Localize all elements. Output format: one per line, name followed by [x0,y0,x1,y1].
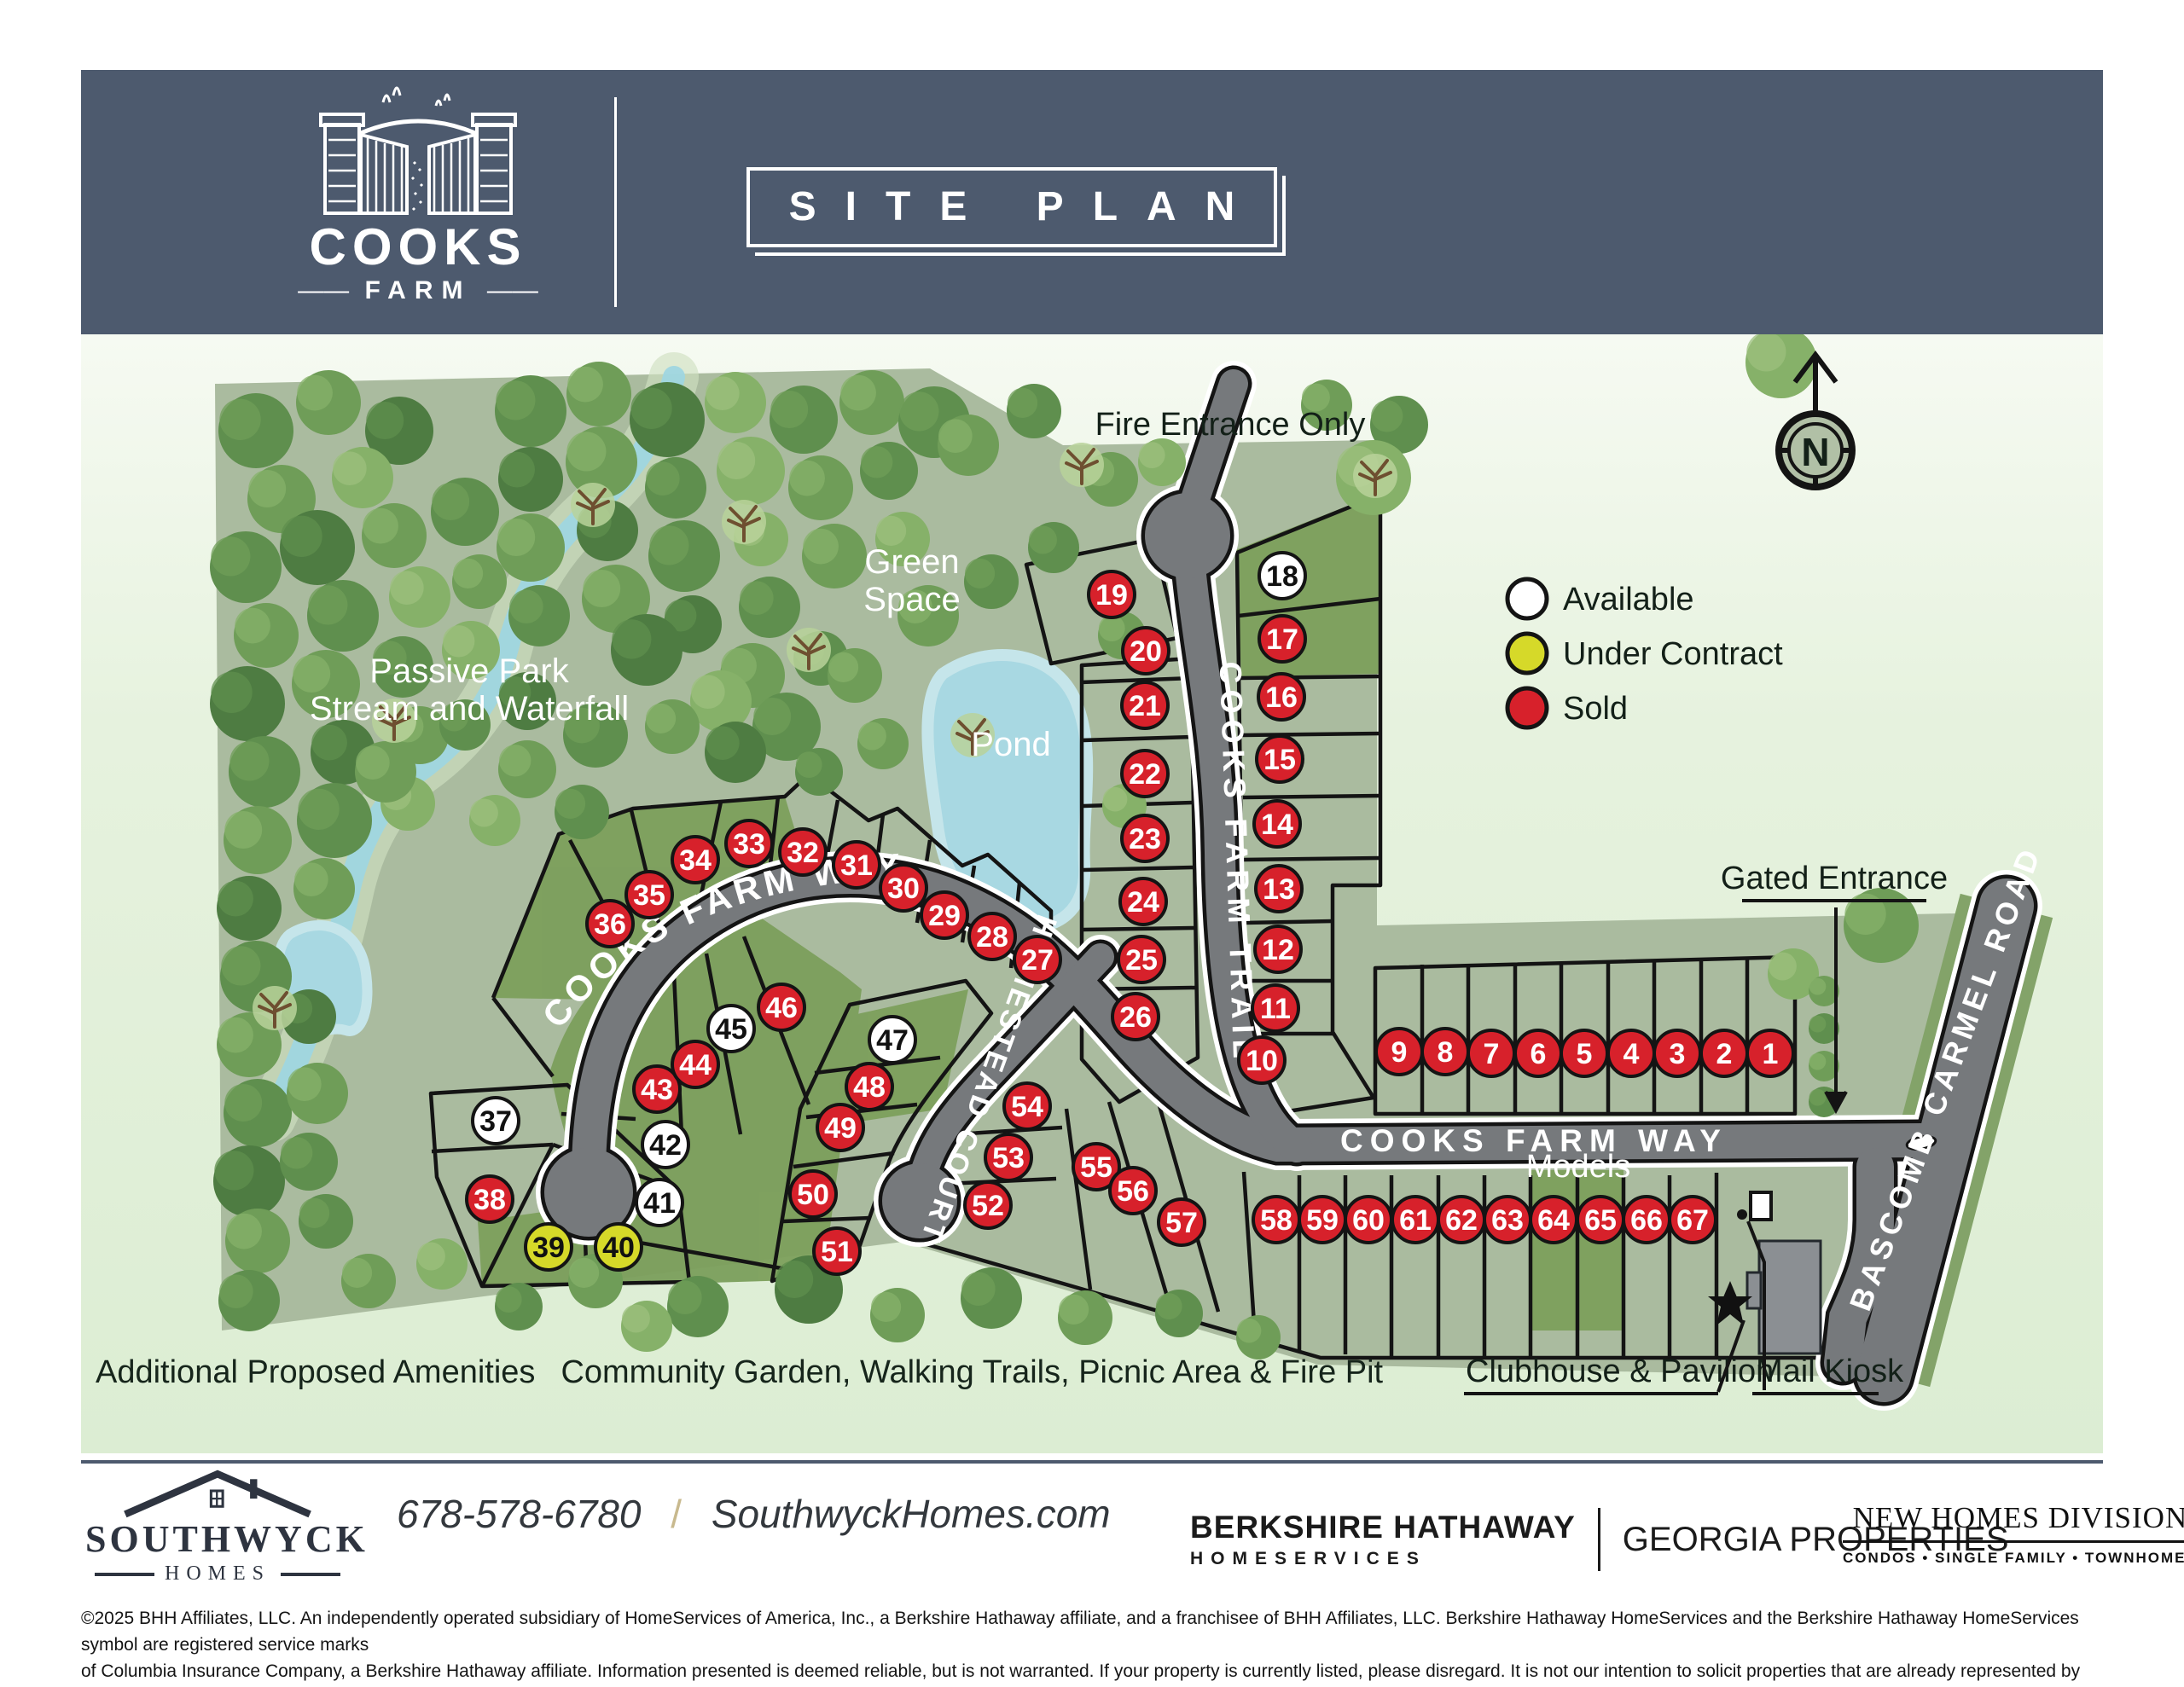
svg-text:8: 8 [1438,1036,1454,1069]
tree-icon [431,478,499,546]
lot-marker-59: 59 [1299,1197,1345,1243]
tree-icon [828,648,882,703]
tree-icon [229,736,300,808]
legend-sold-icon [1507,688,1547,728]
svg-text:31: 31 [840,849,873,882]
lot-marker-65: 65 [1577,1197,1623,1243]
logo-sub: ―― FARM ―― [243,276,593,305]
lot-marker-57: 57 [1159,1199,1205,1245]
tree-icon [802,524,867,588]
svg-text:12: 12 [1262,934,1294,966]
lot-marker-56: 56 [1110,1168,1156,1214]
lot-marker-20: 20 [1123,628,1169,674]
tree-icon [645,699,700,754]
svg-text:11: 11 [1260,993,1291,1025]
lot-marker-50: 50 [790,1171,836,1217]
lot-marker-18: 18 [1259,553,1305,599]
tree-icon [307,580,379,652]
amenities-note: Additional Proposed AmenitiesCommunity G… [96,1354,1383,1391]
lot-marker-6: 6 [1515,1030,1561,1076]
tree-icon [1028,522,1079,573]
lot-marker-63: 63 [1484,1197,1531,1243]
svg-text:25: 25 [1125,944,1158,977]
svg-text:29: 29 [928,900,961,932]
tree-icon [870,1288,925,1342]
lot-marker-27: 27 [1014,936,1060,983]
tree-icon [498,740,556,798]
lot-marker-49: 49 [817,1104,863,1151]
svg-text:59: 59 [1306,1204,1339,1237]
cooks-farm-logo: COOKS ―― FARM ―― [243,78,593,305]
lot-marker-37: 37 [473,1098,519,1144]
lot-marker-12: 12 [1255,926,1301,972]
header-divider [614,97,617,307]
svg-text:64: 64 [1537,1204,1570,1237]
tree-icon [355,741,416,803]
lot-marker-52: 52 [965,1182,1011,1228]
tree-icon [770,386,838,454]
passive-park-label-1: Passive Park [369,652,569,690]
tree-icon [224,806,292,874]
tree-icon [495,1283,543,1330]
tree-icon [280,1133,338,1191]
bare-tree-icon [787,628,831,672]
svg-text:49: 49 [824,1112,857,1145]
tree-icon [452,554,507,609]
tree-icon [416,1238,468,1290]
tree-icon [961,1267,1022,1329]
svg-text:41: 41 [643,1187,676,1220]
svg-text:1: 1 [1763,1038,1779,1070]
lot-marker-62: 62 [1438,1197,1484,1243]
svg-text:24: 24 [1127,886,1159,919]
legal-line-1: ©2025 BHH Affiliates, LLC. An independen… [81,1609,2079,1655]
svg-text:60: 60 [1352,1204,1385,1237]
lot-marker-51: 51 [814,1228,860,1274]
svg-text:9: 9 [1391,1036,1408,1069]
lot-marker-4: 4 [1608,1030,1654,1076]
tree-icon [224,1079,292,1147]
tree-icon [667,1276,729,1337]
svg-text:33: 33 [733,828,765,861]
lot-marker-66: 66 [1623,1197,1670,1243]
tree-icon [296,370,361,435]
division-sub: CONDOS • SINGLE FAMILY • TOWNHOMES [1843,1550,2184,1567]
tree-icon [213,1145,285,1217]
legend-available-icon [1507,579,1547,618]
header-banner: COOKS ―― FARM ―― SITE PLAN [81,70,2103,334]
lot-marker-67: 67 [1670,1197,1716,1243]
lot-marker-9: 9 [1376,1029,1422,1075]
tree-icon [860,442,918,500]
lot-marker-58: 58 [1253,1197,1299,1243]
legal-line-2: of Columbia Insurance Company, a Berkshi… [81,1661,2080,1687]
legend-sold-label: Sold [1563,691,1628,727]
lot-marker-15: 15 [1257,736,1303,782]
svg-text:30: 30 [887,872,920,905]
compass-n-label: N [1801,430,1829,474]
svg-text:58: 58 [1260,1204,1292,1237]
tree-icon [210,531,282,603]
svg-text:57: 57 [1165,1207,1198,1239]
tree-icon [362,503,427,568]
amenities-list: Community Garden, Walking Trails, Picnic… [561,1354,1383,1390]
tree-icon [225,1209,290,1273]
svg-text:56: 56 [1117,1175,1149,1208]
svg-text:15: 15 [1263,744,1296,776]
site-plan-title-box: SITE PLAN [746,167,1277,247]
tree-icon [293,858,355,919]
tree-icon [469,795,520,846]
svg-text:4: 4 [1623,1038,1640,1070]
logo-name: COOKS [243,222,593,273]
tree-icon [210,666,285,741]
tree-icon [498,447,563,512]
lot-marker-40: 40 [595,1224,642,1270]
svg-text:55: 55 [1080,1151,1112,1184]
bare-tree-icon [1353,454,1397,498]
tree-icon [217,876,282,941]
lot-marker-33: 33 [726,820,772,867]
legend-under-contract-label: Under Contract [1563,636,1783,672]
svg-text:2: 2 [1716,1038,1733,1070]
tree-icon [795,748,843,796]
svg-text:48: 48 [853,1071,886,1104]
lot-marker-17: 17 [1259,616,1305,662]
tree-icon [705,372,766,433]
lot-marker-38: 38 [467,1176,513,1222]
tree-icon [218,1270,280,1331]
lot-marker-7: 7 [1468,1030,1514,1076]
svg-text:40: 40 [602,1232,635,1264]
tree-icon [566,362,631,426]
svg-text:16: 16 [1265,681,1298,714]
tree-icon [621,1301,672,1352]
tree-icon [495,375,566,447]
legend-under-contract-icon [1507,634,1547,673]
svg-text:61: 61 [1399,1204,1432,1237]
lot-marker-21: 21 [1122,682,1168,728]
contact-separator: / [671,1492,682,1536]
svg-text:37: 37 [479,1105,512,1138]
website-link[interactable]: SouthwyckHomes.com [712,1492,1111,1536]
tree-icon [839,370,904,435]
brokerage-name: BERKSHIRE HATHAWAY [1190,1510,1576,1545]
brokerage-divider [1598,1508,1600,1571]
lot-marker-13: 13 [1256,866,1302,912]
svg-text:35: 35 [633,879,665,912]
southwyck-house-icon [119,1464,316,1518]
lot-marker-60: 60 [1345,1197,1391,1243]
svg-text:65: 65 [1584,1204,1617,1237]
tree-icon [1155,1290,1203,1337]
passive-park-label-2: Stream and Waterfall [310,690,629,728]
page-title: SITE PLAN [750,171,1274,244]
lot-marker-48: 48 [846,1064,892,1110]
lot-marker-26: 26 [1112,994,1159,1040]
lot-marker-47: 47 [869,1017,915,1063]
svg-text:27: 27 [1021,944,1054,977]
tree-icon [280,510,355,585]
svg-text:26: 26 [1119,1001,1152,1034]
lot-marker-2: 2 [1701,1030,1747,1076]
lot-marker-45: 45 [708,1006,754,1052]
amenities-heading: Additional Proposed Amenities [96,1354,535,1390]
tree-icon [788,455,853,520]
lot-marker-54: 54 [1004,1083,1050,1129]
svg-text:13: 13 [1263,873,1295,906]
tree-icon [611,614,682,686]
svg-text:28: 28 [976,921,1008,954]
lot-marker-10: 10 [1239,1037,1285,1083]
svg-text:5: 5 [1577,1038,1593,1070]
svg-text:44: 44 [679,1049,712,1081]
svg-text:18: 18 [1266,560,1298,593]
new-homes-division-logo: NEW HOMES DIVISION CONDOS • SINGLE FAMIL… [1843,1501,2184,1567]
svg-text:20: 20 [1130,635,1162,668]
tree-icon [717,437,785,505]
lot-marker-64: 64 [1531,1197,1577,1243]
lot-marker-14: 14 [1254,801,1300,847]
svg-text:39: 39 [532,1232,565,1264]
tree-icon [857,718,909,769]
bare-tree-icon [1060,443,1104,487]
legal-disclaimer: ©2025 BHH Affiliates, LLC. An independen… [81,1605,2120,1687]
svg-text:52: 52 [972,1190,1004,1222]
tree-icon [645,457,706,519]
svg-text:63: 63 [1491,1204,1524,1237]
contact-row: 678-578-6780 / SouthwyckHomes.com [397,1491,1111,1537]
tree-icon [297,783,372,858]
lot-marker-22: 22 [1122,751,1168,797]
lot-marker-29: 29 [921,892,967,938]
lot-marker-8: 8 [1422,1029,1468,1075]
southwyck-name: SOUTHWYCK [85,1517,350,1561]
models-label: Models [1526,1149,1631,1185]
bare-tree-icon [571,483,615,527]
lot-marker-34: 34 [672,837,718,883]
lot-marker-25: 25 [1118,936,1165,983]
gated-entrance-label: Gated Entrance [1721,861,1948,896]
lot-marker-23: 23 [1122,815,1168,861]
clubhouse-label: Clubhouse & Pavilion [1466,1354,1774,1389]
lot-marker-44: 44 [672,1041,718,1087]
tree-icon [648,520,720,592]
pond-label: Pond [971,726,1050,763]
tree-icon [1745,327,1817,398]
lot-marker-1: 1 [1747,1030,1793,1076]
svg-text:14: 14 [1261,809,1293,841]
bare-tree-icon [722,500,766,544]
svg-text:62: 62 [1445,1204,1478,1237]
lot-marker-31: 31 [834,842,880,888]
svg-text:6: 6 [1531,1038,1547,1070]
svg-text:50: 50 [797,1179,829,1211]
lot-marker-41: 41 [636,1180,682,1226]
gate-icon [311,84,525,220]
lot-marker-46: 46 [758,984,804,1030]
svg-text:54: 54 [1011,1091,1043,1123]
svg-text:23: 23 [1129,823,1161,855]
svg-text:51: 51 [821,1236,853,1268]
lot-marker-16: 16 [1258,674,1304,720]
tree-icon [299,1194,353,1249]
tree-icon [739,577,800,638]
tree-icon [964,554,1019,609]
lot-marker-42: 42 [642,1122,688,1168]
lot-marker-53: 53 [985,1134,1031,1180]
tree-icon [938,415,999,476]
tree-icon [218,393,293,468]
svg-text:17: 17 [1266,623,1298,656]
site-plan-page: COOKS FARM WAY COOKS FARM WAY COOKS FARM… [0,0,2184,1687]
svg-text:47: 47 [876,1024,909,1057]
tree-icon [1138,438,1186,486]
tree-icon [630,382,705,457]
svg-text:10: 10 [1246,1045,1278,1077]
svg-text:66: 66 [1630,1204,1663,1237]
tree-icon [389,566,450,628]
svg-text:22: 22 [1129,758,1161,791]
lot-marker-3: 3 [1654,1030,1700,1076]
lot-marker-28: 28 [969,913,1015,959]
footer-divider [81,1460,2103,1464]
lot-marker-61: 61 [1392,1197,1438,1243]
division-name: NEW HOMES DIVISION [1843,1501,2184,1543]
svg-text:38: 38 [473,1184,506,1216]
phone-number: 678-578-6780 [397,1492,641,1536]
lot-marker-30: 30 [880,865,926,911]
svg-text:19: 19 [1095,579,1128,612]
svg-text:34: 34 [679,844,712,877]
lot-marker-24: 24 [1120,878,1166,925]
svg-text:36: 36 [594,908,626,941]
brokerage-sub: HOMESERVICES [1190,1549,1576,1569]
tree-icon [1007,384,1061,438]
tree-icon [332,447,393,508]
tree-icon [234,603,299,668]
tree-icon [287,1063,348,1124]
lot-marker-39: 39 [526,1224,572,1270]
clubhouse-building [1747,1241,1821,1354]
southwyck-sub: HOMES [85,1562,350,1586]
tree-icon [705,722,766,783]
fire-entrance-label: Fire Entrance Only [1095,407,1366,443]
svg-text:45: 45 [715,1013,747,1046]
svg-text:42: 42 [649,1129,682,1162]
lot-marker-32: 32 [780,829,826,875]
lot-marker-19: 19 [1089,571,1135,617]
bare-tree-icon [253,986,297,1030]
lot-marker-36: 36 [587,901,633,947]
green-space-label-1: Green [864,543,959,581]
mail-kiosk-label: Mail Kiosk [1756,1354,1904,1389]
svg-text:21: 21 [1129,690,1161,722]
svg-text:53: 53 [992,1142,1025,1174]
tree-icon [341,1254,396,1308]
lot-marker-35: 35 [626,872,672,918]
tree-icon [508,585,570,646]
lot-marker-5: 5 [1561,1030,1607,1076]
lot-marker-11: 11 [1252,985,1298,1031]
southwyck-logo: SOUTHWYCK HOMES [85,1464,350,1586]
svg-text:67: 67 [1676,1204,1709,1237]
svg-text:7: 7 [1484,1038,1500,1070]
tree-icon [555,785,609,839]
svg-text:3: 3 [1670,1038,1686,1070]
svg-text:46: 46 [765,992,798,1024]
svg-text:32: 32 [787,837,819,869]
svg-text:43: 43 [641,1074,673,1106]
tree-icon [1058,1290,1112,1345]
tree-icon [497,513,565,582]
legend-available-label: Available [1563,582,1694,617]
green-space-label-2: Space [863,581,960,618]
tree-icon [1236,1315,1281,1359]
